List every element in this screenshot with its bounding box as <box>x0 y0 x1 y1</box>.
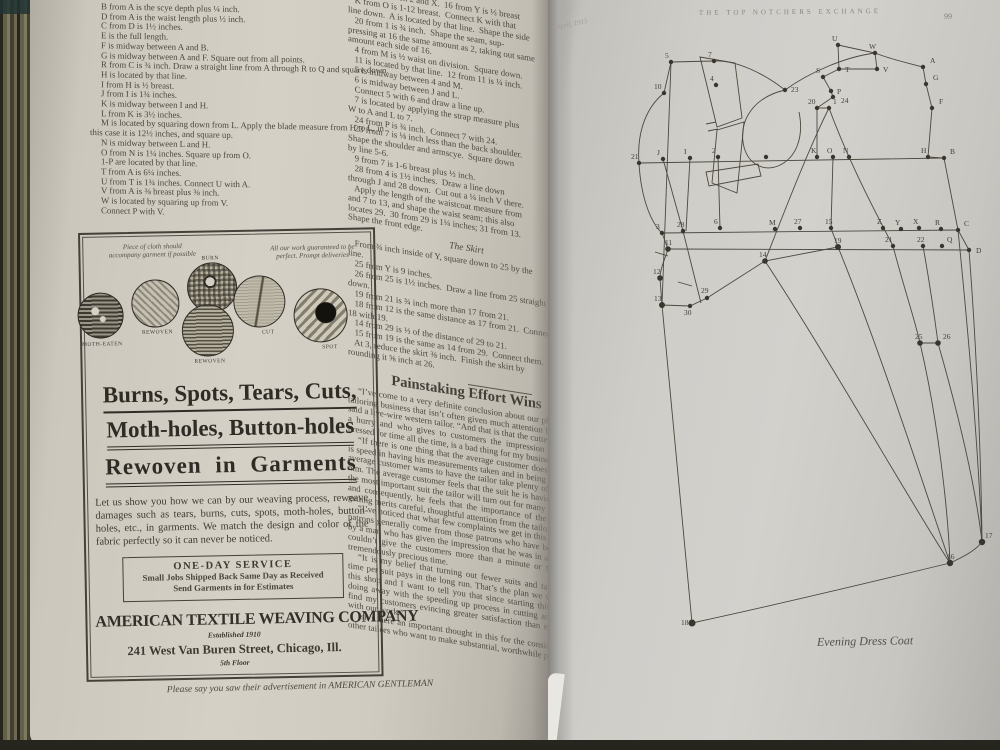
swatch-rewoven-2 <box>181 304 234 357</box>
ad-note-left: Piece of cloth should accompany garment … <box>108 243 196 260</box>
ad-headline-line2: Moth-holes, Button-holes <box>106 411 355 451</box>
swatch-label: CUT <box>262 329 275 335</box>
ad-note-right: All our work guaranteed to be perfect. P… <box>266 244 358 261</box>
diagram-caption: Evening Dress Coat <box>790 633 940 651</box>
swatch-label: BURN <box>201 255 218 261</box>
instruction-list: way between 2 and X. 16 from Y is ⅓ brea… <box>348 0 558 260</box>
photo-of-open-book: { "left_page": { "column1_lines": [ "B f… <box>0 0 1000 750</box>
left-page: B from A is the scye depth plus ¼ inch.D… <box>30 0 558 744</box>
service-box: ONE-DAY SERVICE Small Jobs Shipped Back … <box>122 553 344 602</box>
swatch-spot <box>293 288 348 343</box>
reweaving-advertisement: Piece of cloth should accompany garment … <box>78 227 384 682</box>
instruction-column-1: B from A is the scye depth plus ¼ inch.D… <box>90 2 390 222</box>
backdrop-bottom <box>0 740 1000 750</box>
page-number: 99 <box>944 12 952 21</box>
swatch-rewoven-1 <box>131 279 180 328</box>
ad-headline-line1: Burns, Spots, Tears, Cuts, <box>102 376 356 414</box>
swatch-label: REWOVEN <box>142 329 173 336</box>
ad-headline: Burns, Spots, Tears, Cuts, Moth-holes, B… <box>91 375 370 489</box>
swatch-label: MOTH-EATEN <box>82 341 123 348</box>
instruction-list: B from A is the scye depth plus ¼ inch.D… <box>90 2 390 222</box>
ad-body-text: Let us show you how we can by our weavin… <box>95 491 369 548</box>
swatch-moth-eaten <box>77 292 124 339</box>
swatch-cut <box>233 275 286 328</box>
fabric-swatch-figure: Piece of cloth should accompany garment … <box>88 235 367 372</box>
page-edge <box>548 672 565 747</box>
swatch-label: SPOT <box>322 344 338 350</box>
footer-slogan: Please say you saw their advertisement i… <box>135 678 465 696</box>
ad-headline-line3: Rewoven in Garments <box>105 448 357 488</box>
company-block: AMERICAN TEXTILE WEAVING COMPANY Establi… <box>95 608 373 669</box>
swatch-label: REWOVEN <box>194 358 225 365</box>
